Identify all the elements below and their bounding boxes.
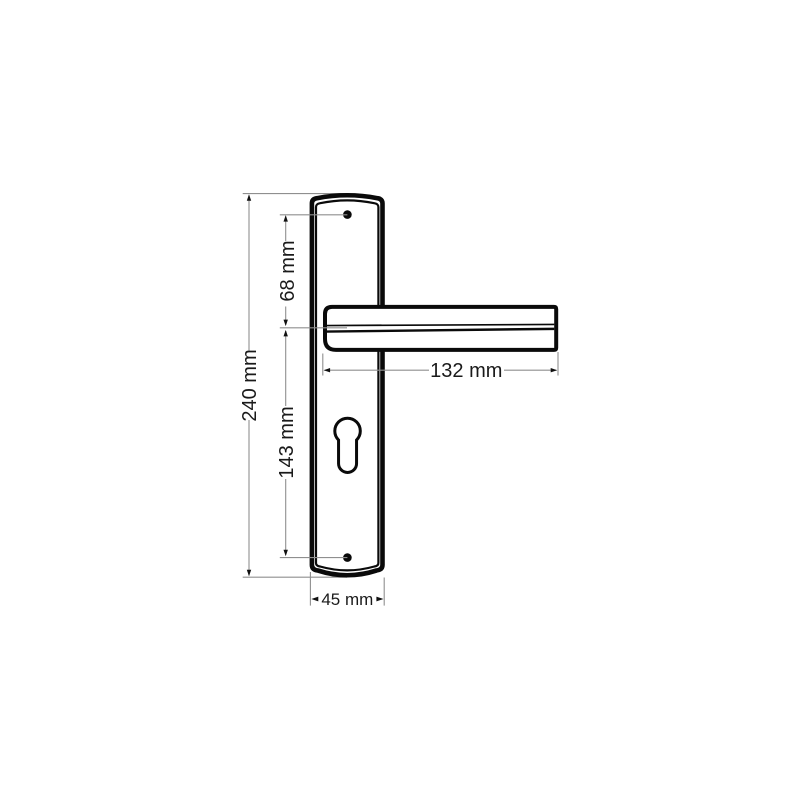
svg-text:45 mm: 45 mm — [321, 590, 373, 609]
svg-text:143 mm: 143 mm — [276, 406, 298, 478]
svg-text:68 mm: 68 mm — [277, 240, 299, 301]
svg-text:132 mm: 132 mm — [430, 360, 502, 382]
svg-text:240 mm: 240 mm — [239, 349, 261, 421]
